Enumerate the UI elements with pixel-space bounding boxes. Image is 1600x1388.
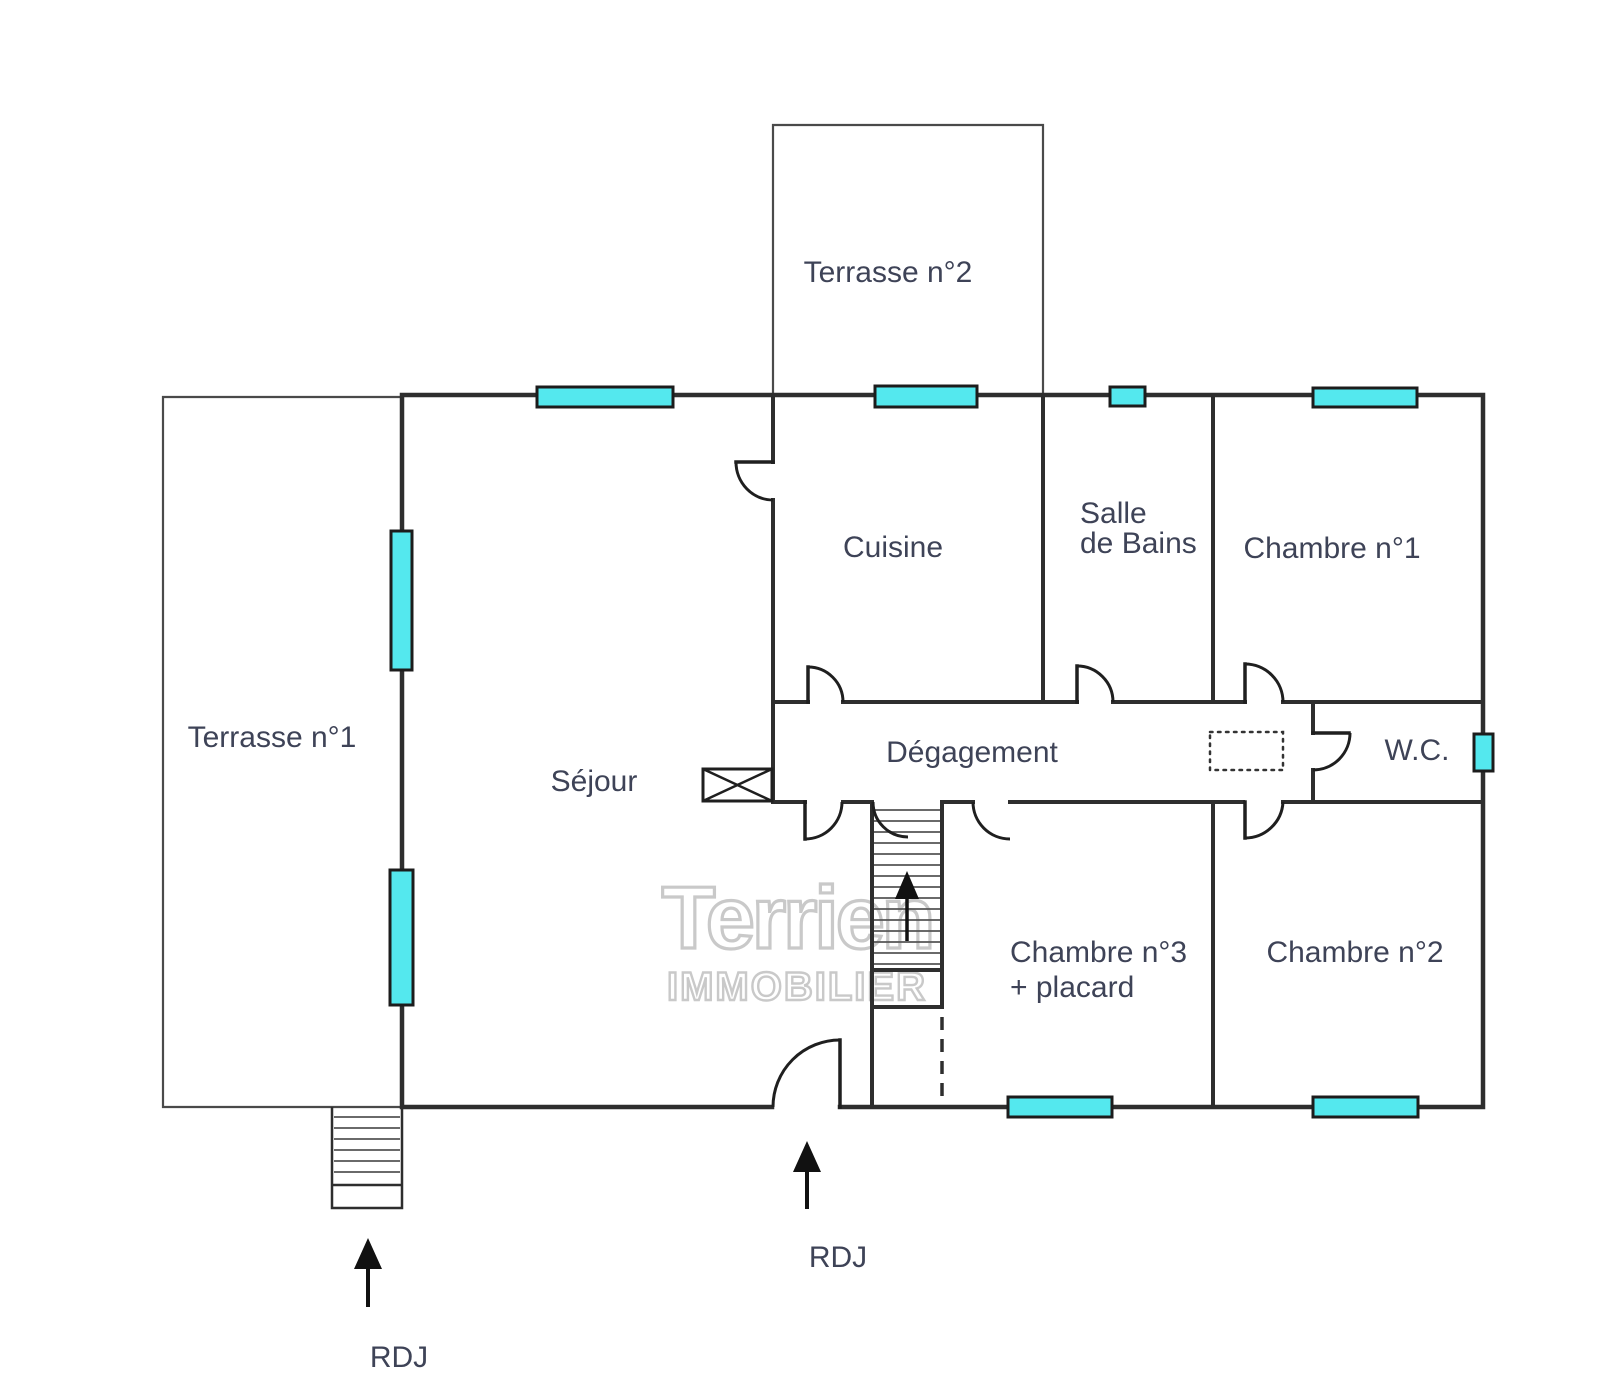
label-chambre3-line2: + placard — [1010, 971, 1134, 1004]
exterior-stairs-border — [332, 1107, 402, 1208]
window-cuisine-top — [875, 386, 977, 407]
label-rdj-center: RDJ — [809, 1241, 867, 1274]
label-salle-de-bains-line2: de Bains — [1080, 527, 1197, 560]
exterior-stairs — [332, 1107, 402, 1208]
chambre3-door-arc — [973, 802, 1010, 839]
chambre2-door-arc — [1245, 802, 1283, 838]
salle-de-bains-door-arc — [1077, 666, 1113, 702]
window-sejour-top — [537, 387, 673, 407]
room-labels: Terrasse n°2 Terrasse n°1 Séjour Cuisine… — [188, 256, 1450, 1374]
sejour-terrace-door-arc — [736, 462, 773, 500]
label-rdj-left: RDJ — [370, 1341, 428, 1374]
window-chambre2-bottom — [1313, 1097, 1418, 1117]
cuisine-door-arc — [808, 667, 843, 702]
window-sejour-left-lower — [390, 870, 413, 1005]
window-sejour-left-upper — [391, 531, 412, 670]
duct-crossed-box-diagonals — [703, 769, 772, 801]
sejour-corridor-door-arc — [805, 802, 842, 839]
rdj-center-arrow-icon — [793, 1141, 821, 1172]
label-sejour: Séjour — [551, 765, 638, 798]
label-chambre2: Chambre n°2 — [1266, 936, 1443, 969]
label-degagement: Dégagement — [886, 736, 1058, 769]
window-chambre1-top — [1313, 388, 1417, 407]
label-terrasse1: Terrasse n°1 — [188, 721, 357, 754]
floor-plan-svg: Terrasse n°2 Terrasse n°1 Séjour Cuisine… — [0, 0, 1600, 1388]
label-wc: W.C. — [1385, 734, 1450, 767]
chambre1-door-arc — [1245, 664, 1283, 702]
window-wc-right — [1474, 734, 1493, 771]
floor-plan-page: Terrien IMMOBILIER — [0, 0, 1600, 1388]
entrance-door-arc — [773, 1040, 840, 1107]
label-salle-de-bains-line1: Salle — [1080, 497, 1147, 530]
hatch-dotted-rect — [1210, 732, 1283, 770]
rdj-arrows — [354, 1141, 821, 1307]
window-salle-de-bains-top — [1110, 387, 1145, 406]
label-terrasse2: Terrasse n°2 — [804, 256, 973, 289]
rdj-left-arrow-icon — [354, 1238, 382, 1269]
label-chambre3-line1: Chambre n°3 — [1010, 936, 1187, 969]
wc-door-arc — [1313, 733, 1350, 770]
label-chambre1: Chambre n°1 — [1243, 532, 1420, 565]
window-chambre3-bottom — [1008, 1097, 1112, 1117]
label-cuisine: Cuisine — [843, 531, 943, 564]
interior-stairs — [874, 810, 940, 964]
exterior-stair-treads — [334, 1117, 400, 1172]
